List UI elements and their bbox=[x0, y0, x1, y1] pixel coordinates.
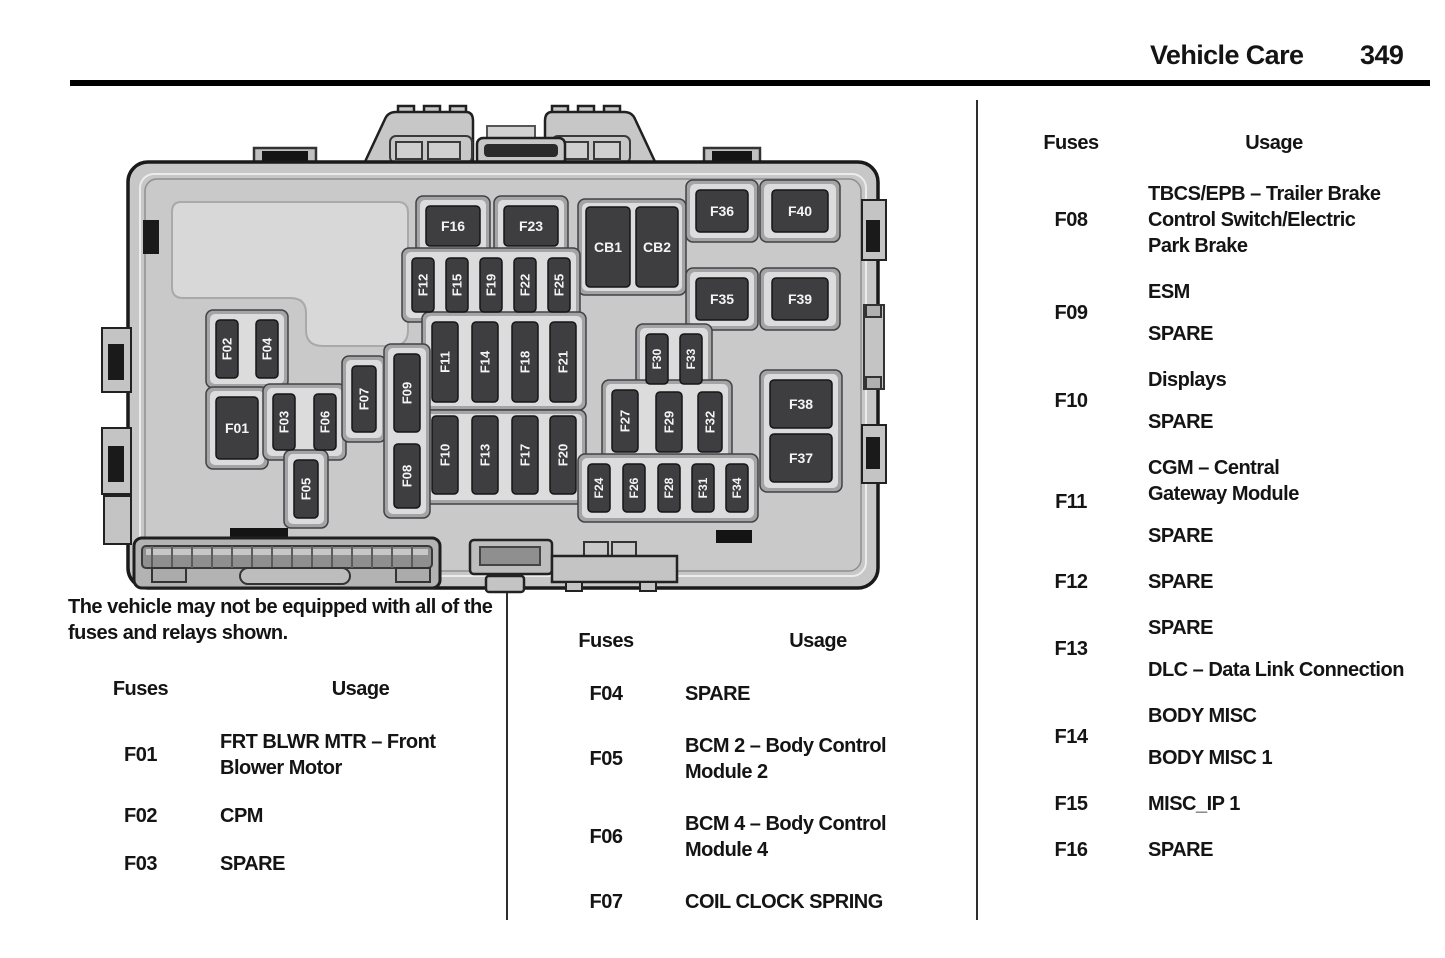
fusebox-diagram: F01F02F04F03F06F05F07F09F08F12F15F19F22F… bbox=[95, 100, 905, 605]
fuse-block-F27: F27 bbox=[612, 390, 638, 452]
fuse-id: F05 bbox=[545, 748, 667, 771]
fuses-column-header: Fuses bbox=[545, 630, 667, 653]
fuse-block-F02: F02 bbox=[216, 320, 238, 378]
fuse-block-F25: F25 bbox=[548, 258, 570, 312]
svg-text:F23: F23 bbox=[519, 218, 543, 234]
fuse-block-F09: F09 bbox=[394, 354, 420, 432]
table-row: F14BODY MISCBODY MISC 1 bbox=[1030, 703, 1436, 771]
fuse-block-F21: F21 bbox=[550, 322, 576, 402]
fuse-id: F16 bbox=[1030, 839, 1112, 862]
svg-text:F22: F22 bbox=[518, 274, 533, 296]
table-row: F12SPARE bbox=[1030, 569, 1436, 595]
svg-text:F40: F40 bbox=[788, 203, 812, 219]
svg-text:F30: F30 bbox=[650, 348, 664, 369]
fuse-block-F39: F39 bbox=[772, 278, 828, 320]
fuse-id: F09 bbox=[1030, 302, 1112, 325]
fuse-block-F11: F11 bbox=[432, 322, 458, 402]
fuse-table-middle: FusesUsageF04SPAREF05BCM 2 – Body Contro… bbox=[545, 630, 969, 941]
fuse-block-F08: F08 bbox=[394, 444, 420, 508]
page-title: Vehicle Care bbox=[1150, 40, 1303, 71]
svg-text:F29: F29 bbox=[662, 411, 677, 433]
fuse-block-F18: F18 bbox=[512, 322, 538, 402]
svg-text:F35: F35 bbox=[710, 291, 734, 307]
table-row: F01FRT BLWR MTR – FrontBlower Motor bbox=[68, 729, 508, 781]
fuse-block-F40: F40 bbox=[772, 190, 828, 232]
fuse-block-F30: F30 bbox=[646, 334, 668, 384]
fuse-block-F17: F17 bbox=[512, 416, 538, 494]
svg-text:F21: F21 bbox=[556, 351, 571, 373]
usage-column-header: Usage bbox=[1112, 132, 1436, 155]
fuse-usage: DisplaysSPARE bbox=[1148, 367, 1436, 435]
fuse-usage: CPM bbox=[220, 803, 508, 829]
fuse-block-F20: F20 bbox=[550, 416, 576, 494]
usage-column-header: Usage bbox=[667, 630, 969, 653]
svg-text:F37: F37 bbox=[789, 450, 813, 466]
svg-text:F33: F33 bbox=[684, 348, 698, 369]
fuse-block-F33: F33 bbox=[680, 334, 702, 384]
fuse-block-CB1: CB1 bbox=[586, 207, 630, 287]
fuse-block-F01: F01 bbox=[216, 397, 258, 459]
fuse-id: F07 bbox=[545, 891, 667, 914]
table-row: F06BCM 4 – Body ControlModule 4 bbox=[545, 811, 969, 863]
table-row: F04SPARE bbox=[545, 681, 969, 707]
svg-text:F07: F07 bbox=[357, 388, 372, 410]
fuse-block-F34: F34 bbox=[726, 464, 748, 512]
svg-text:F25: F25 bbox=[552, 274, 567, 296]
fuse-block-F32: F32 bbox=[698, 392, 722, 452]
fuse-block-F24: F24 bbox=[588, 464, 610, 512]
svg-text:F16: F16 bbox=[441, 218, 465, 234]
fuse-block-F14: F14 bbox=[472, 322, 498, 402]
fuse-usage: SPAREDLC – Data Link Connection bbox=[1148, 615, 1436, 683]
fuse-id: F02 bbox=[68, 805, 213, 828]
svg-text:F10: F10 bbox=[438, 444, 453, 466]
fuse-block-F35: F35 bbox=[696, 278, 748, 320]
fuse-id: F11 bbox=[1030, 491, 1112, 514]
fuse-block-F04: F04 bbox=[256, 320, 278, 378]
svg-text:F28: F28 bbox=[662, 477, 676, 498]
fuse-id: F14 bbox=[1030, 726, 1112, 749]
fuse-usage: MISC_IP 1 bbox=[1148, 791, 1436, 817]
fuse-id: F03 bbox=[68, 853, 213, 876]
svg-text:F34: F34 bbox=[730, 477, 744, 498]
fuse-block-F29: F29 bbox=[656, 392, 682, 452]
fuse-block-F10: F10 bbox=[432, 416, 458, 494]
svg-text:CB2: CB2 bbox=[643, 239, 671, 255]
fuse-block-F26: F26 bbox=[623, 464, 645, 512]
svg-text:F08: F08 bbox=[400, 465, 415, 487]
fuse-block-F06: F06 bbox=[314, 394, 336, 450]
svg-text:F12: F12 bbox=[416, 274, 431, 296]
header-rule bbox=[70, 80, 1430, 86]
table-header: FusesUsage bbox=[68, 678, 508, 701]
table-row: F02CPM bbox=[68, 803, 508, 829]
table-row: F13SPAREDLC – Data Link Connection bbox=[1030, 615, 1436, 683]
svg-text:F26: F26 bbox=[627, 477, 641, 498]
fuse-usage: SPARE bbox=[220, 851, 508, 877]
svg-text:F01: F01 bbox=[225, 420, 249, 436]
svg-text:F02: F02 bbox=[220, 338, 235, 360]
fuse-usage: BCM 2 – Body ControlModule 2 bbox=[685, 733, 969, 785]
table-row: F09ESMSPARE bbox=[1030, 279, 1436, 347]
fuse-usage: ESMSPARE bbox=[1148, 279, 1436, 347]
svg-text:F31: F31 bbox=[696, 477, 710, 498]
table-row: F08TBCS/EPB – Trailer BrakeControl Switc… bbox=[1030, 181, 1436, 259]
fuse-usage: CGM – CentralGateway ModuleSPARE bbox=[1148, 455, 1436, 549]
fuse-block-F28: F28 bbox=[658, 464, 680, 512]
svg-text:F20: F20 bbox=[556, 444, 571, 466]
svg-text:F19: F19 bbox=[484, 274, 499, 296]
svg-text:F32: F32 bbox=[703, 411, 718, 433]
fuse-block-F13: F13 bbox=[472, 416, 498, 494]
fuse-block-F15: F15 bbox=[446, 258, 468, 312]
svg-text:F36: F36 bbox=[710, 203, 734, 219]
svg-text:F27: F27 bbox=[618, 410, 633, 432]
column-divider-right bbox=[976, 100, 978, 920]
fuse-usage: BODY MISCBODY MISC 1 bbox=[1148, 703, 1436, 771]
fuse-id: F08 bbox=[1030, 209, 1112, 232]
equipment-note: The vehicle may not be equipped with all… bbox=[68, 594, 504, 646]
fuse-id: F06 bbox=[545, 826, 667, 849]
table-row: F16SPARE bbox=[1030, 837, 1436, 863]
fuse-usage: FRT BLWR MTR – FrontBlower Motor bbox=[220, 729, 508, 781]
table-row: F10DisplaysSPARE bbox=[1030, 367, 1436, 435]
svg-text:F05: F05 bbox=[299, 478, 314, 500]
fuse-id: F13 bbox=[1030, 638, 1112, 661]
fuse-block-F23: F23 bbox=[504, 206, 558, 246]
fuse-block-F37: F37 bbox=[770, 434, 832, 482]
usage-column-header: Usage bbox=[213, 678, 508, 701]
fuse-id: F04 bbox=[545, 683, 667, 706]
fuse-block-F36: F36 bbox=[696, 190, 748, 232]
fuse-block-F31: F31 bbox=[692, 464, 714, 512]
fuse-block-F05: F05 bbox=[294, 460, 318, 518]
fuse-usage: SPARE bbox=[685, 681, 969, 707]
svg-text:F15: F15 bbox=[450, 274, 465, 296]
svg-text:CB1: CB1 bbox=[594, 239, 622, 255]
page-number: 349 bbox=[1360, 40, 1403, 71]
top-mounts bbox=[254, 106, 760, 168]
fuse-usage: COIL CLOCK SPRING bbox=[685, 889, 969, 915]
svg-text:F14: F14 bbox=[478, 350, 493, 373]
fuse-usage: SPARE bbox=[1148, 569, 1436, 595]
fuse-block-CB2: CB2 bbox=[636, 207, 678, 287]
svg-text:F09: F09 bbox=[400, 382, 415, 404]
fuse-block-F38: F38 bbox=[770, 380, 832, 428]
svg-text:F24: F24 bbox=[592, 477, 606, 498]
svg-text:F17: F17 bbox=[518, 444, 533, 466]
svg-text:F04: F04 bbox=[260, 337, 275, 360]
column-divider-left bbox=[506, 593, 508, 920]
table-row: F05BCM 2 – Body ControlModule 2 bbox=[545, 733, 969, 785]
fuse-table-right: FusesUsageF08TBCS/EPB – Trailer BrakeCon… bbox=[1030, 132, 1436, 883]
svg-text:F39: F39 bbox=[788, 291, 812, 307]
fuse-id: F15 bbox=[1030, 793, 1112, 816]
table-header: FusesUsage bbox=[1030, 132, 1436, 155]
table-row: F11CGM – CentralGateway ModuleSPARE bbox=[1030, 455, 1436, 549]
table-row: F15MISC_IP 1 bbox=[1030, 791, 1436, 817]
fuse-usage: TBCS/EPB – Trailer BrakeControl Switch/E… bbox=[1148, 181, 1436, 259]
svg-text:F38: F38 bbox=[789, 396, 813, 412]
svg-text:F13: F13 bbox=[478, 444, 493, 466]
fuses-column-header: Fuses bbox=[1030, 132, 1112, 155]
table-row: F07COIL CLOCK SPRING bbox=[545, 889, 969, 915]
fuse-block-F16: F16 bbox=[426, 206, 480, 246]
table-header: FusesUsage bbox=[545, 630, 969, 653]
svg-text:F06: F06 bbox=[318, 411, 333, 433]
manual-page: { "header": { "section_title": "Vehicle … bbox=[0, 0, 1445, 958]
svg-text:F11: F11 bbox=[438, 351, 453, 373]
svg-text:F03: F03 bbox=[277, 411, 292, 433]
fuse-id: F10 bbox=[1030, 390, 1112, 413]
fuse-block-F03: F03 bbox=[273, 394, 295, 450]
table-row: F03SPARE bbox=[68, 851, 508, 877]
fuse-usage: SPARE bbox=[1148, 837, 1436, 863]
fuse-id: F01 bbox=[68, 744, 213, 767]
fuse-id: F12 bbox=[1030, 571, 1112, 594]
fuse-block-F19: F19 bbox=[480, 258, 502, 312]
svg-text:F18: F18 bbox=[518, 351, 533, 373]
fuse-block-F07: F07 bbox=[352, 366, 376, 432]
fuse-block-F22: F22 bbox=[514, 258, 536, 312]
fuses-column-header: Fuses bbox=[68, 678, 213, 701]
fuse-table-left: FusesUsageF01FRT BLWR MTR – FrontBlower … bbox=[68, 678, 508, 899]
fuse-usage: BCM 4 – Body ControlModule 4 bbox=[685, 811, 969, 863]
fuse-block-F12: F12 bbox=[412, 258, 434, 312]
